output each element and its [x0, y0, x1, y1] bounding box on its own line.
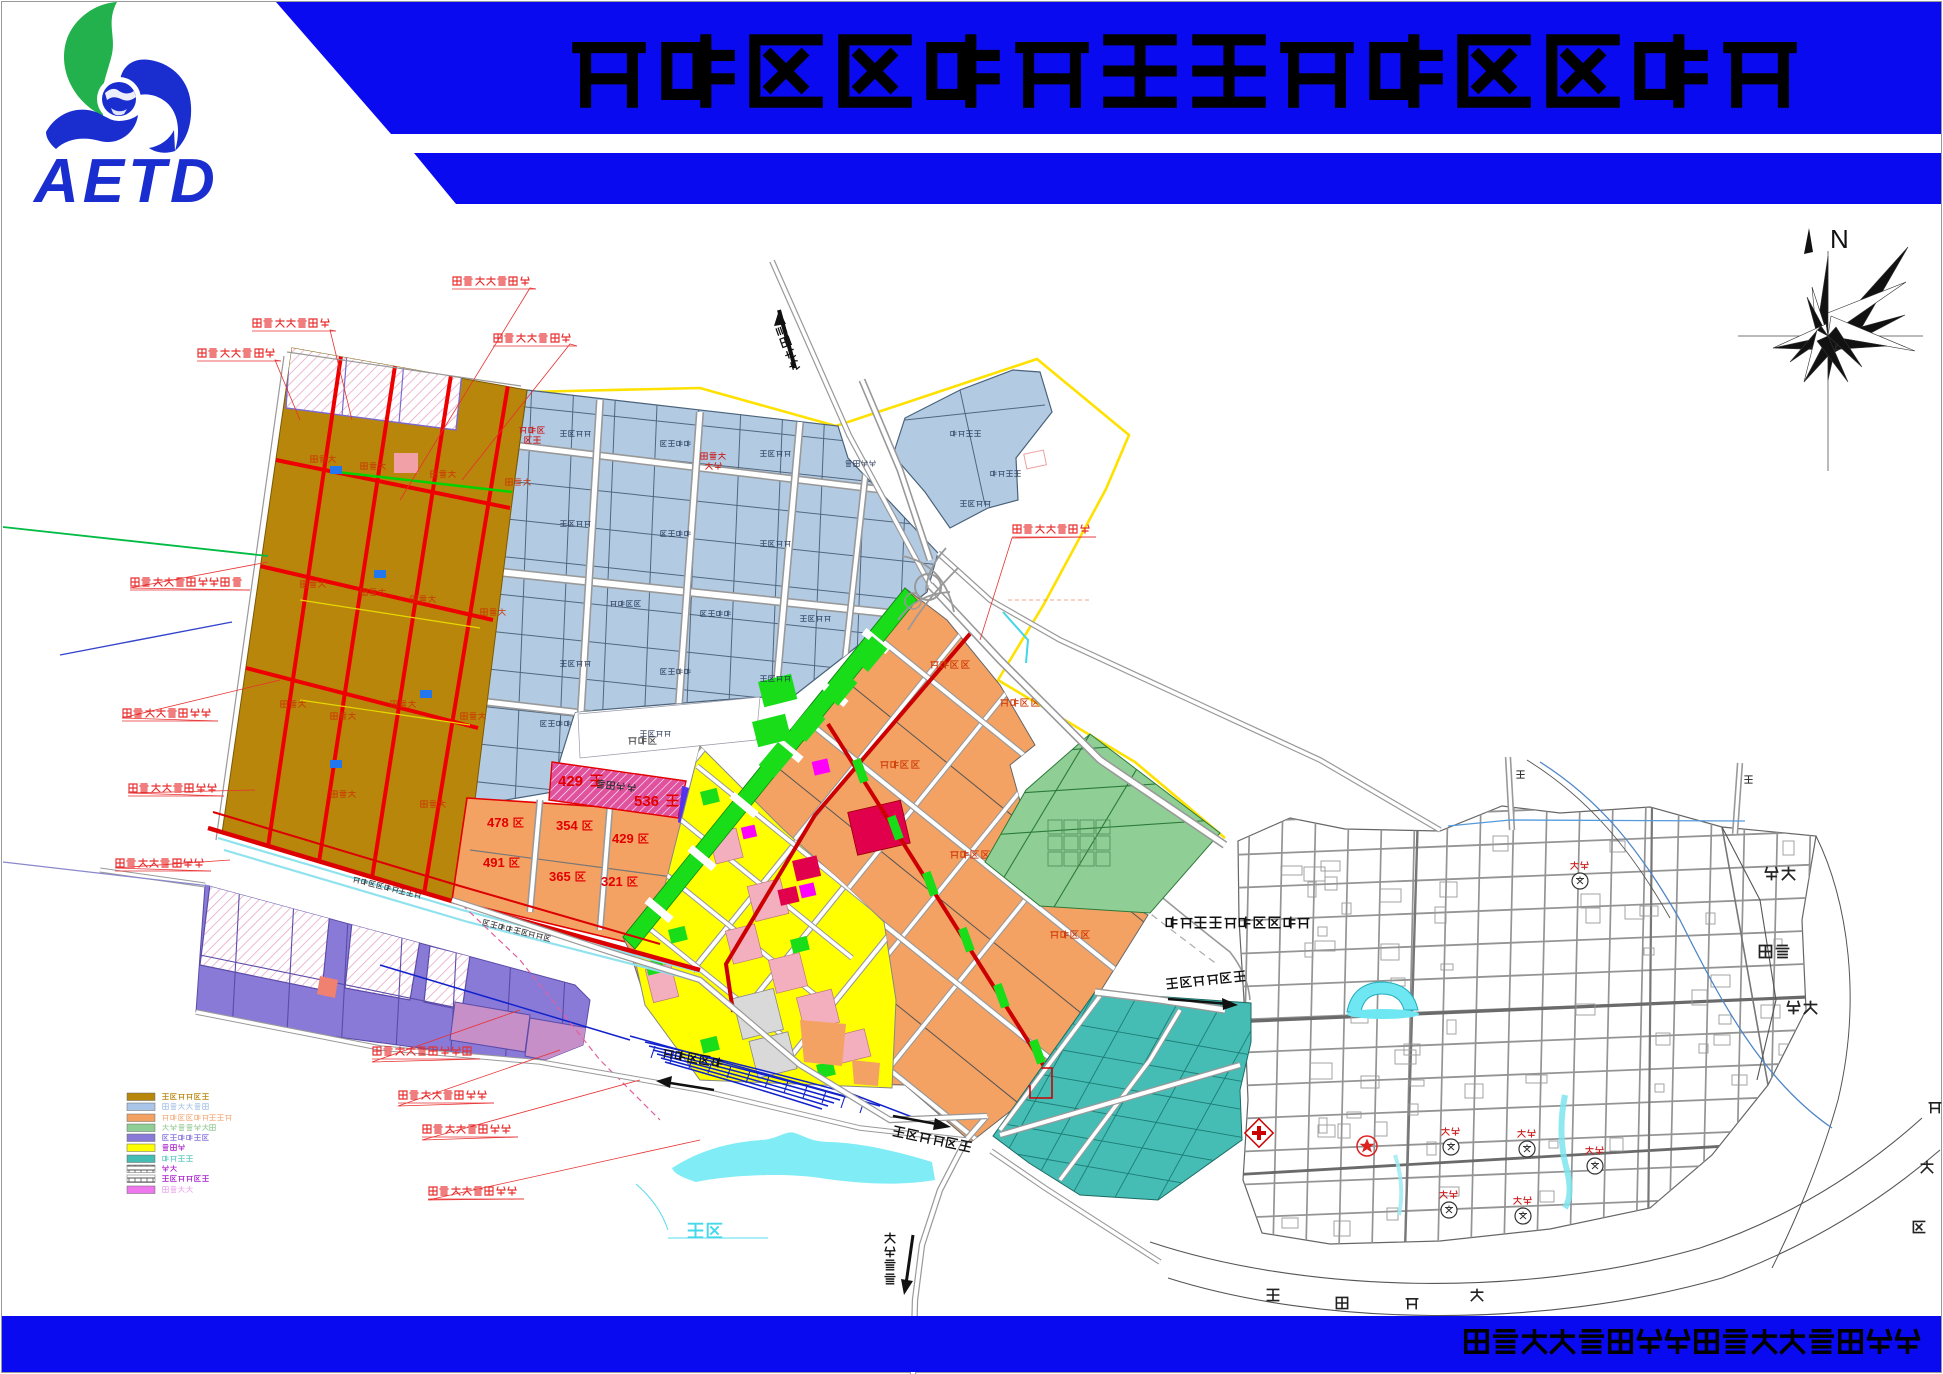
svg-text:491: 491: [483, 855, 505, 870]
svg-text:365: 365: [549, 869, 571, 884]
svg-text:429: 429: [612, 831, 634, 846]
svg-text:478: 478: [487, 815, 509, 830]
svg-text:536: 536: [634, 793, 659, 810]
svg-text:354: 354: [556, 818, 578, 833]
svg-text:N: N: [1830, 224, 1849, 254]
svg-text:AETD: AETD: [32, 147, 219, 216]
svg-text:429: 429: [558, 773, 583, 790]
svg-text:321: 321: [601, 874, 623, 889]
